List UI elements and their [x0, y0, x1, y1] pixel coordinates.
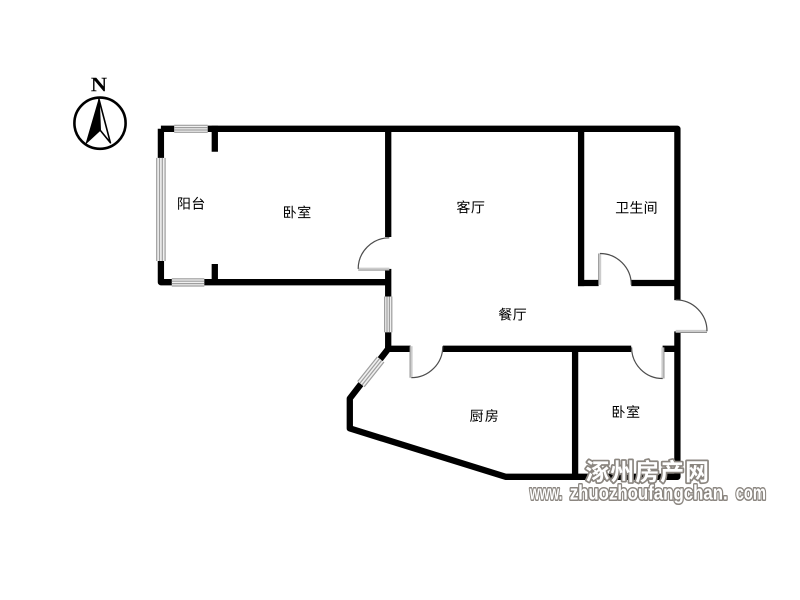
svg-text:com: com [736, 482, 766, 504]
svg-text:zhuozhoufangchan.: zhuozhoufangchan. [570, 482, 728, 504]
svg-text:www.: www. [529, 482, 562, 504]
